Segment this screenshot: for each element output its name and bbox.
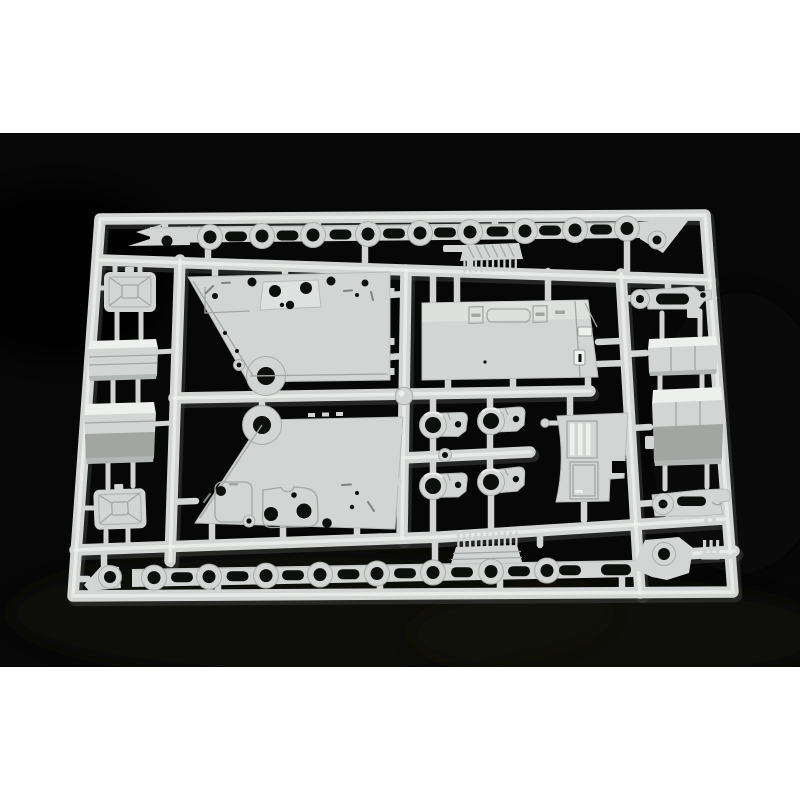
- injection-ball-node: [395, 387, 413, 405]
- jerry-can-2: [93, 483, 147, 530]
- product-photo-page: [0, 0, 800, 800]
- fuel-tank-2: [84, 402, 156, 464]
- ball-node-highlight: [399, 391, 405, 397]
- stowage-box-1: [648, 336, 718, 376]
- sprue-photo-canvas: [0, 133, 800, 667]
- engine-deck-plate: [422, 300, 598, 380]
- jerry-can-1: [104, 267, 156, 312]
- sprue-photo: [0, 133, 800, 667]
- bottom-margin: [0, 667, 800, 800]
- fuel-tank-1: [88, 339, 158, 381]
- axle-hub-2: [478, 407, 526, 435]
- stowage-box-2: [645, 387, 723, 466]
- pin-part: [541, 419, 549, 427]
- hub-circlet: [439, 449, 452, 462]
- top-margin: [0, 0, 800, 133]
